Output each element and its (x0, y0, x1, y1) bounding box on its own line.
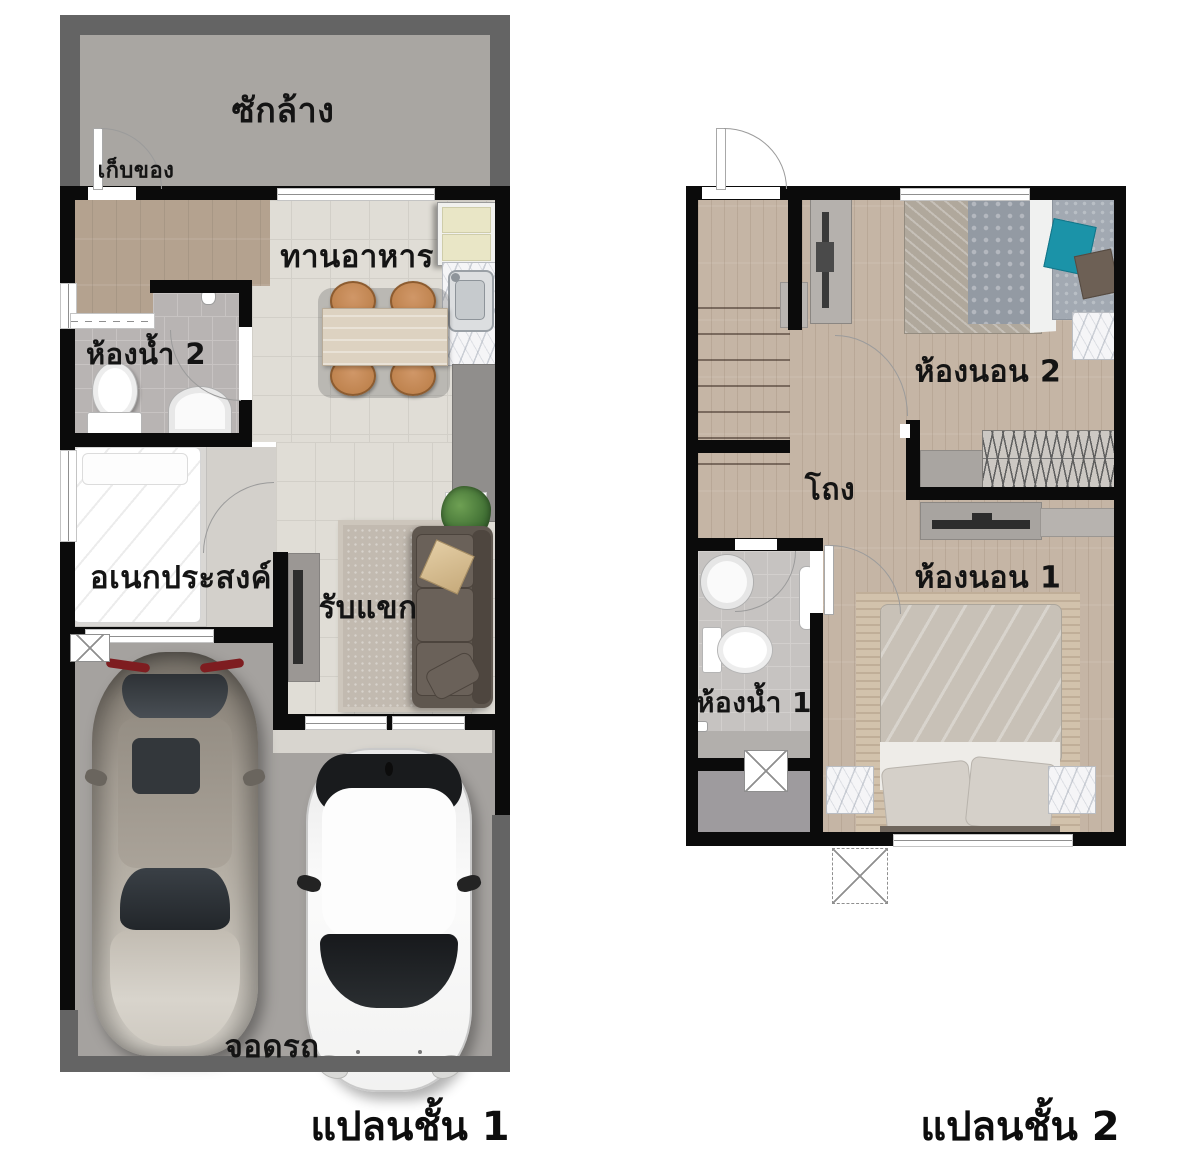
dining-table (322, 308, 448, 366)
room-label-hall: โถง (805, 467, 855, 514)
living-divider-wall (273, 552, 288, 729)
car-sedan-sunroof (132, 738, 200, 794)
laundry-band-top (60, 15, 510, 35)
ac-unit (832, 848, 888, 904)
car-sedan-rear-window (122, 674, 228, 720)
car-sedan-hood (110, 930, 240, 1046)
floor2-caption: แปลนชั้น 2 (920, 1094, 1119, 1158)
toilet-bowl (717, 626, 773, 674)
bathroom2-floor (153, 293, 240, 318)
bed2-blanket (968, 198, 1034, 324)
ac-unit (70, 634, 110, 662)
room-label-living: รับแขก (319, 582, 418, 632)
bathroom2-wall-top (150, 280, 252, 293)
parking-band-left (60, 1010, 78, 1058)
room-label-storage: เก็บของ (98, 153, 175, 188)
room-label-laundry: ซักล้าง (232, 83, 335, 137)
door-opening (810, 551, 823, 613)
door-opening (735, 539, 777, 550)
nightstand (1072, 312, 1118, 360)
window (900, 188, 1030, 201)
wall-right2 (1114, 186, 1126, 846)
parking-band-right (492, 815, 510, 1058)
floor1-caption: แปลนชั้น 1 (310, 1094, 509, 1158)
car-hatchback-hood-dot (356, 1050, 360, 1054)
ac-unit (744, 750, 788, 792)
stairs-wall (788, 198, 802, 330)
room-label-multipurpose: อเนกประสงค์ (90, 552, 272, 602)
room-label-parking: จอดรถ (225, 1021, 320, 1071)
wall-left2 (686, 186, 698, 846)
window (893, 834, 1073, 847)
refrigerator-door-top (442, 207, 491, 233)
tv-base (972, 513, 992, 521)
room-label-bedroom2: ห้องนอน 2 (915, 349, 1062, 396)
room-label-bedroom1: ห้องนอน 1 (915, 555, 1062, 602)
wall-right (495, 186, 510, 815)
wardrobe (982, 430, 1116, 488)
window (392, 716, 465, 730)
window (277, 188, 435, 201)
bedroom-divider-wall (906, 487, 1114, 500)
bed1-duvet (880, 604, 1062, 764)
storage-floor-left (68, 286, 153, 316)
car-hatchback (306, 748, 472, 1092)
room-label-bathroom1: ห้องน้ำ 1 (696, 681, 812, 725)
interior-window (70, 313, 155, 329)
window (305, 716, 387, 730)
refrigerator-door-bottom (442, 234, 491, 261)
window (60, 450, 77, 542)
tv-screen (932, 520, 1030, 529)
car-hatchback-roof (322, 788, 456, 938)
storage-floor (68, 200, 270, 286)
tv-screen (293, 570, 303, 664)
floorplan-image: ซักล้าง เก็บของ ทานอาหาร ห้องน้ำ 2 อเนกป… (0, 0, 1200, 1169)
nightstand (1048, 766, 1096, 814)
understairs-wall (698, 440, 790, 453)
car-sedan (92, 652, 258, 1056)
laundry-band-right (490, 15, 510, 186)
kitchen-sink-basin (455, 280, 485, 320)
bathroom2-wall-bottom (60, 433, 252, 447)
tv-console-shelf (1040, 508, 1116, 537)
wall-notch (900, 424, 910, 438)
stair-cabinet-knob (816, 242, 834, 272)
car-sedan-windshield (120, 868, 230, 930)
car-hatchback-hood-dot (418, 1050, 422, 1054)
sofa-cushion (416, 588, 474, 642)
car-hatchback-antenna (385, 762, 393, 776)
door-arc (724, 128, 787, 189)
bed-pillow (82, 453, 188, 485)
bed1-pillow (965, 756, 1058, 835)
wardrobe-ledge (920, 450, 984, 488)
room-label-bathroom2: ห้องน้ำ 2 (86, 331, 206, 377)
kitchen-faucet (451, 273, 460, 282)
room-label-dining: ทานอาหาร (280, 231, 434, 281)
nightstand (826, 766, 874, 814)
laundry-band-left (60, 15, 80, 186)
